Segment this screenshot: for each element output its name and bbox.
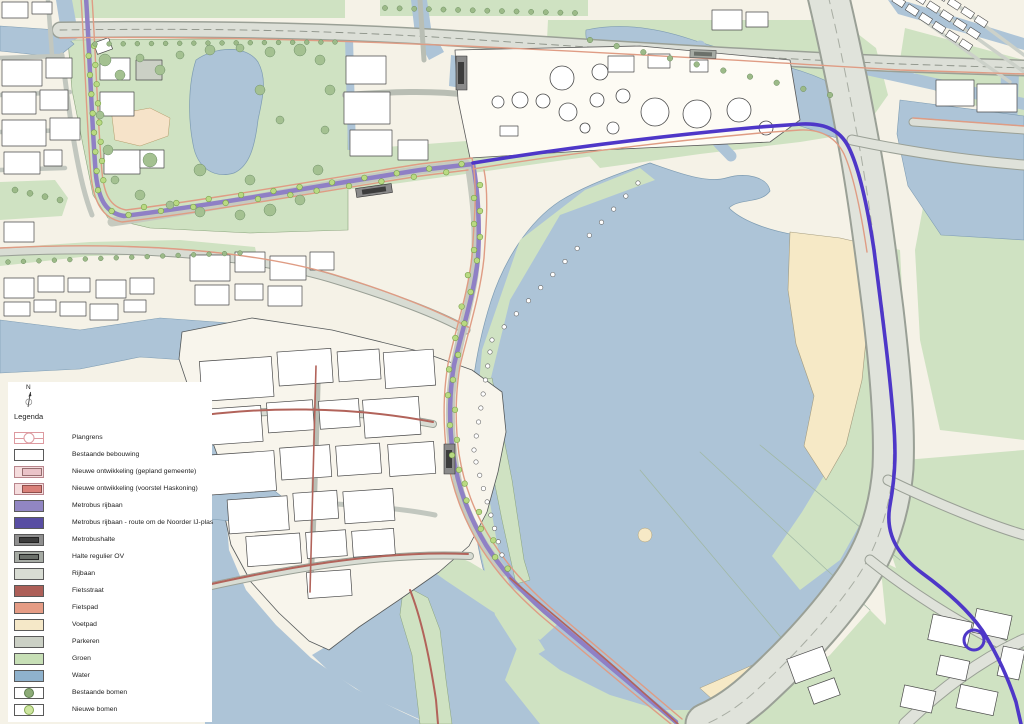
legend-swatch-circle (14, 704, 44, 716)
legend-item: Metrobushalte (14, 531, 212, 548)
legend-item: Voetpad (14, 616, 212, 633)
legend-item-list: PlangrensBestaande bebouwingNieuwe ontwi… (14, 429, 212, 718)
legend-swatch-plain (14, 619, 44, 631)
legend-title: Legenda (14, 412, 212, 421)
legend-item: Rijbaan (14, 565, 212, 582)
legend-swatch-plain (14, 636, 44, 648)
legend-swatch-inner (14, 483, 44, 495)
legend-swatch-plangrens (14, 432, 44, 444)
legend-item: Plangrens (14, 429, 212, 446)
legend-item: Nieuwe ontwikkeling (gepland gemeente) (14, 463, 212, 480)
legend-item: Nieuwe ontwikkeling (voorstel Haskoning) (14, 480, 212, 497)
legend-swatch-halte (14, 551, 44, 563)
north-label: N (26, 384, 31, 391)
legend-item-label: Metrobus rijbaan - route om de Noorder I… (72, 519, 213, 526)
legend-swatch-inner (14, 466, 44, 478)
legend-item-label: Nieuwe bomen (72, 706, 117, 713)
legend-swatch-plain (14, 670, 44, 682)
legend-swatch-circle (14, 687, 44, 699)
legend-item-label: Bestaande bebouwing (72, 451, 139, 458)
legend-item-label: Groen (72, 655, 91, 662)
legend-item-label: Halte regulier OV (72, 553, 124, 560)
legend-item-label: Metrobushalte (72, 536, 115, 543)
legend-item-label: Water (72, 672, 90, 679)
legend-item-label: Nieuwe ontwikkeling (gepland gemeente) (72, 468, 196, 475)
legend-item: Bestaande bomen (14, 684, 212, 701)
legend-panel: N Legenda PlangrensBestaande bebouwingNi… (8, 382, 212, 722)
north-arrow: N (22, 384, 212, 409)
legend-item: Fietsstraat (14, 582, 212, 599)
legend-swatch-plain (14, 449, 44, 461)
legend-item-label: Nieuwe ontwikkeling (voorstel Haskoning) (72, 485, 198, 492)
legend-item-label: Metrobus rijbaan (72, 502, 123, 509)
map-stage: N Legenda PlangrensBestaande bebouwingNi… (0, 0, 1024, 724)
north-arrow-icon (22, 391, 36, 409)
legend-item: Metrobus rijbaan - route om de Noorder I… (14, 514, 212, 531)
legend-swatch-plain (14, 568, 44, 580)
legend-item-label: Plangrens (72, 434, 103, 441)
legend-item: Water (14, 667, 212, 684)
legend-item: Halte regulier OV (14, 548, 212, 565)
legend-item-label: Fietsstraat (72, 587, 104, 594)
legend-swatch-plain (14, 500, 44, 512)
legend-item-label: Parkeren (72, 638, 100, 645)
legend-item-label: Fietspad (72, 604, 98, 611)
legend-item: Nieuwe bomen (14, 701, 212, 718)
legend-swatch-plain (14, 517, 44, 529)
legend-item: Bestaande bebouwing (14, 446, 212, 463)
legend-item-label: Rijbaan (72, 570, 95, 577)
legend-item: Groen (14, 650, 212, 667)
legend-swatch-plain (14, 653, 44, 665)
legend-item-label: Voetpad (72, 621, 97, 628)
legend-item-label: Bestaande bomen (72, 689, 127, 696)
legend-swatch-plain (14, 585, 44, 597)
legend-item: Fietspad (14, 599, 212, 616)
legend-swatch-plain (14, 602, 44, 614)
legend-swatch-halte (14, 534, 44, 546)
legend-item: Parkeren (14, 633, 212, 650)
legend-item: Metrobus rijbaan (14, 497, 212, 514)
